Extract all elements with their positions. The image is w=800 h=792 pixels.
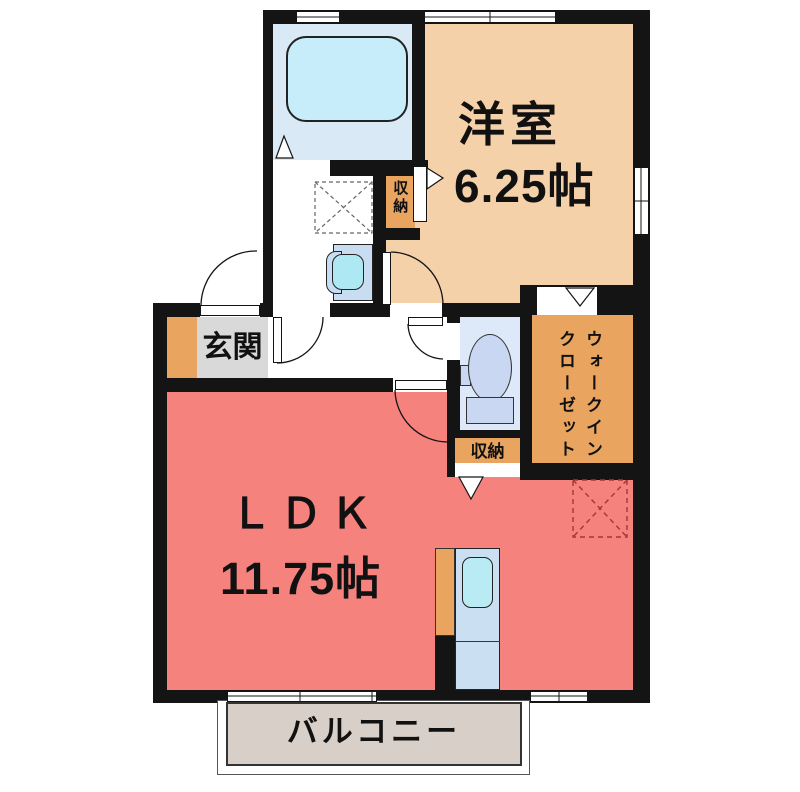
toilet-tank [466, 397, 514, 424]
washbasin-bowl [332, 254, 364, 290]
ldk-room-label: ＬＤＫ [230, 490, 380, 538]
yoshitsu-size-label: 6.25帖 [454, 160, 595, 213]
wall-segment [373, 228, 420, 240]
storage-mid-label: 収納 [391, 180, 408, 216]
wall-segment [412, 10, 425, 176]
genkan-label: 玄関 [197, 331, 268, 366]
ldk-right-window [530, 691, 588, 702]
yoshitsu-room-label: 洋室 [458, 98, 562, 152]
entrance-door-arc [201, 251, 257, 305]
balcony-label: バルコニー [226, 714, 522, 750]
bathroom-door-opening [273, 160, 330, 176]
wic-door-opening [537, 287, 597, 315]
storage-mid-door-leaf [413, 166, 427, 222]
ldk-size-label: 11.75帖 [220, 553, 381, 605]
yoshitsu-door-leaf [382, 252, 391, 305]
wic-label: ウォークイン クローゼット [552, 330, 606, 462]
entrance-door-leaf [200, 305, 260, 316]
toilet-bowl [468, 334, 512, 402]
yoshitsu-door-opening [390, 303, 442, 317]
yoshitsu-right-window [634, 167, 649, 235]
ldk-balcony-window [227, 691, 377, 702]
yoshitsu-top-window [424, 11, 556, 23]
kitchen-counter-divider [455, 641, 500, 642]
wall-segment [153, 303, 167, 703]
toilet-door-opening [447, 323, 460, 360]
washroom-door-opening [273, 303, 330, 317]
bathroom-window [296, 11, 340, 23]
storage-ldk-label: 収納 [455, 442, 520, 462]
genkan-orange-strip [167, 317, 197, 378]
ldk-door-leaf [395, 380, 447, 390]
kitchen-side-panel [435, 548, 455, 636]
kitchen-wall-stub [435, 636, 455, 690]
kitchen-sink [462, 557, 493, 608]
bathtub [286, 36, 408, 122]
storage-ldk-opening [455, 463, 520, 477]
toilet-door-leaf [408, 317, 443, 326]
floor-plan: 洋室 6.25帖 ＬＤＫ 11.75帖 玄関 収納 収納 ウォークイン クローゼ… [0, 0, 800, 792]
washroom-door-leaf [273, 317, 282, 363]
